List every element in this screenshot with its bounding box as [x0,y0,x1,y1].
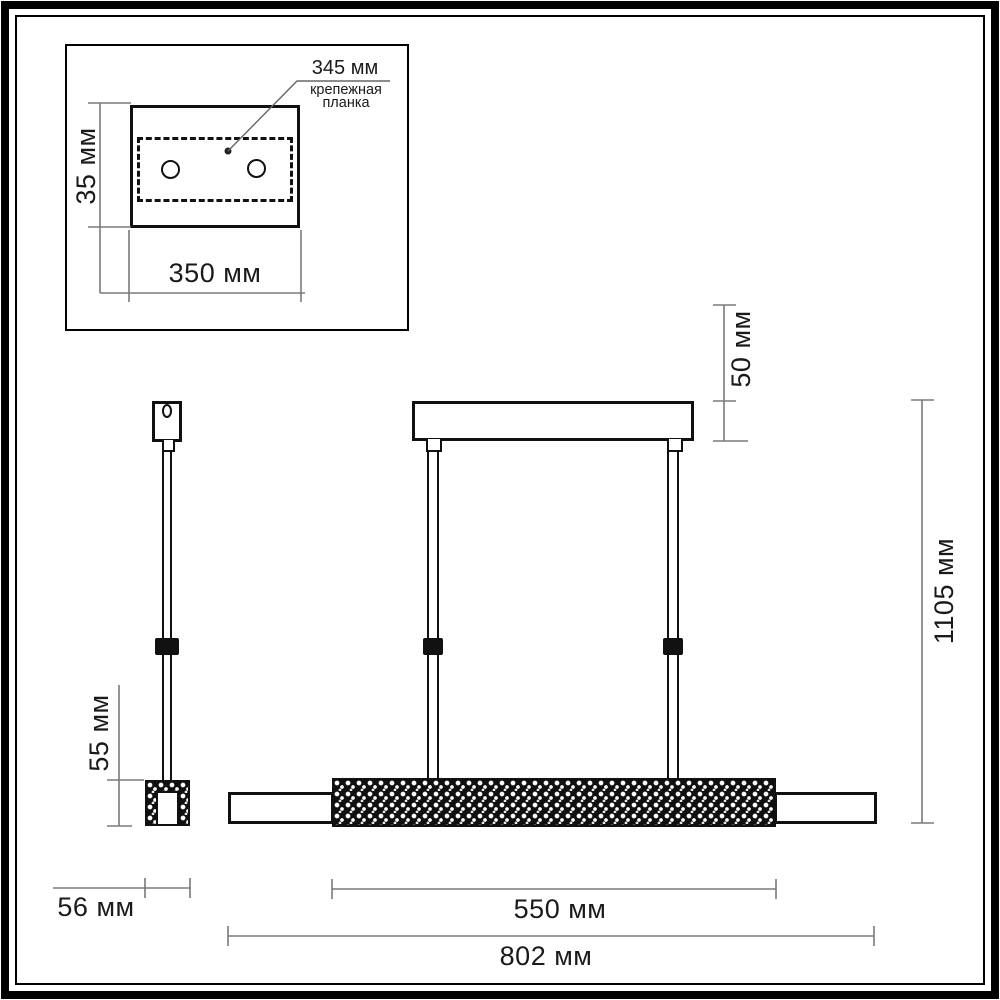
label-overall-length: 802 мм [481,941,611,972]
label-plate-height: 35 мм [71,106,101,226]
bar-end-left [228,792,334,824]
front-view-rod-upper-right [667,452,679,638]
label-cap-height: 55 мм [84,673,114,793]
side-view-rod-upper [162,452,172,638]
label-plate-span: 345 мм [295,57,395,80]
side-view-end-cap-core [156,791,179,826]
bar-crystal-section [332,778,776,827]
side-view-cord-adjuster [155,638,179,655]
label-overall-drop: 1105 мм [929,521,959,661]
bar-end-right [774,792,877,824]
label-cap-width: 56 мм [36,892,156,923]
plate-hole-left [161,160,180,179]
caption-line-2: планка [286,97,406,110]
label-crystal-length: 550 мм [495,894,625,925]
label-plate-width: 350 мм [155,258,275,289]
side-view-stem [162,440,175,452]
front-view-rod-upper-left [427,452,439,638]
front-view-stem-left [426,439,442,452]
drawing-canvas: 345 мм крепежная планка 35 мм 350 мм 55 … [0,0,1000,1000]
front-view-rod-lower-left [427,655,439,778]
label-canopy-height: 50 мм [726,289,756,409]
side-view-keyhole-slot [162,404,172,418]
front-view-stem-right [667,439,683,452]
front-view-cord-adjuster-right [663,638,683,655]
front-view-rod-lower-right [667,655,679,778]
side-view-rod-lower [162,655,172,780]
plate-hole-right [247,159,266,178]
front-view-canopy [412,401,694,441]
label-mounting-plate-caption: крепежная планка [286,84,406,109]
front-view-cord-adjuster-left [423,638,443,655]
